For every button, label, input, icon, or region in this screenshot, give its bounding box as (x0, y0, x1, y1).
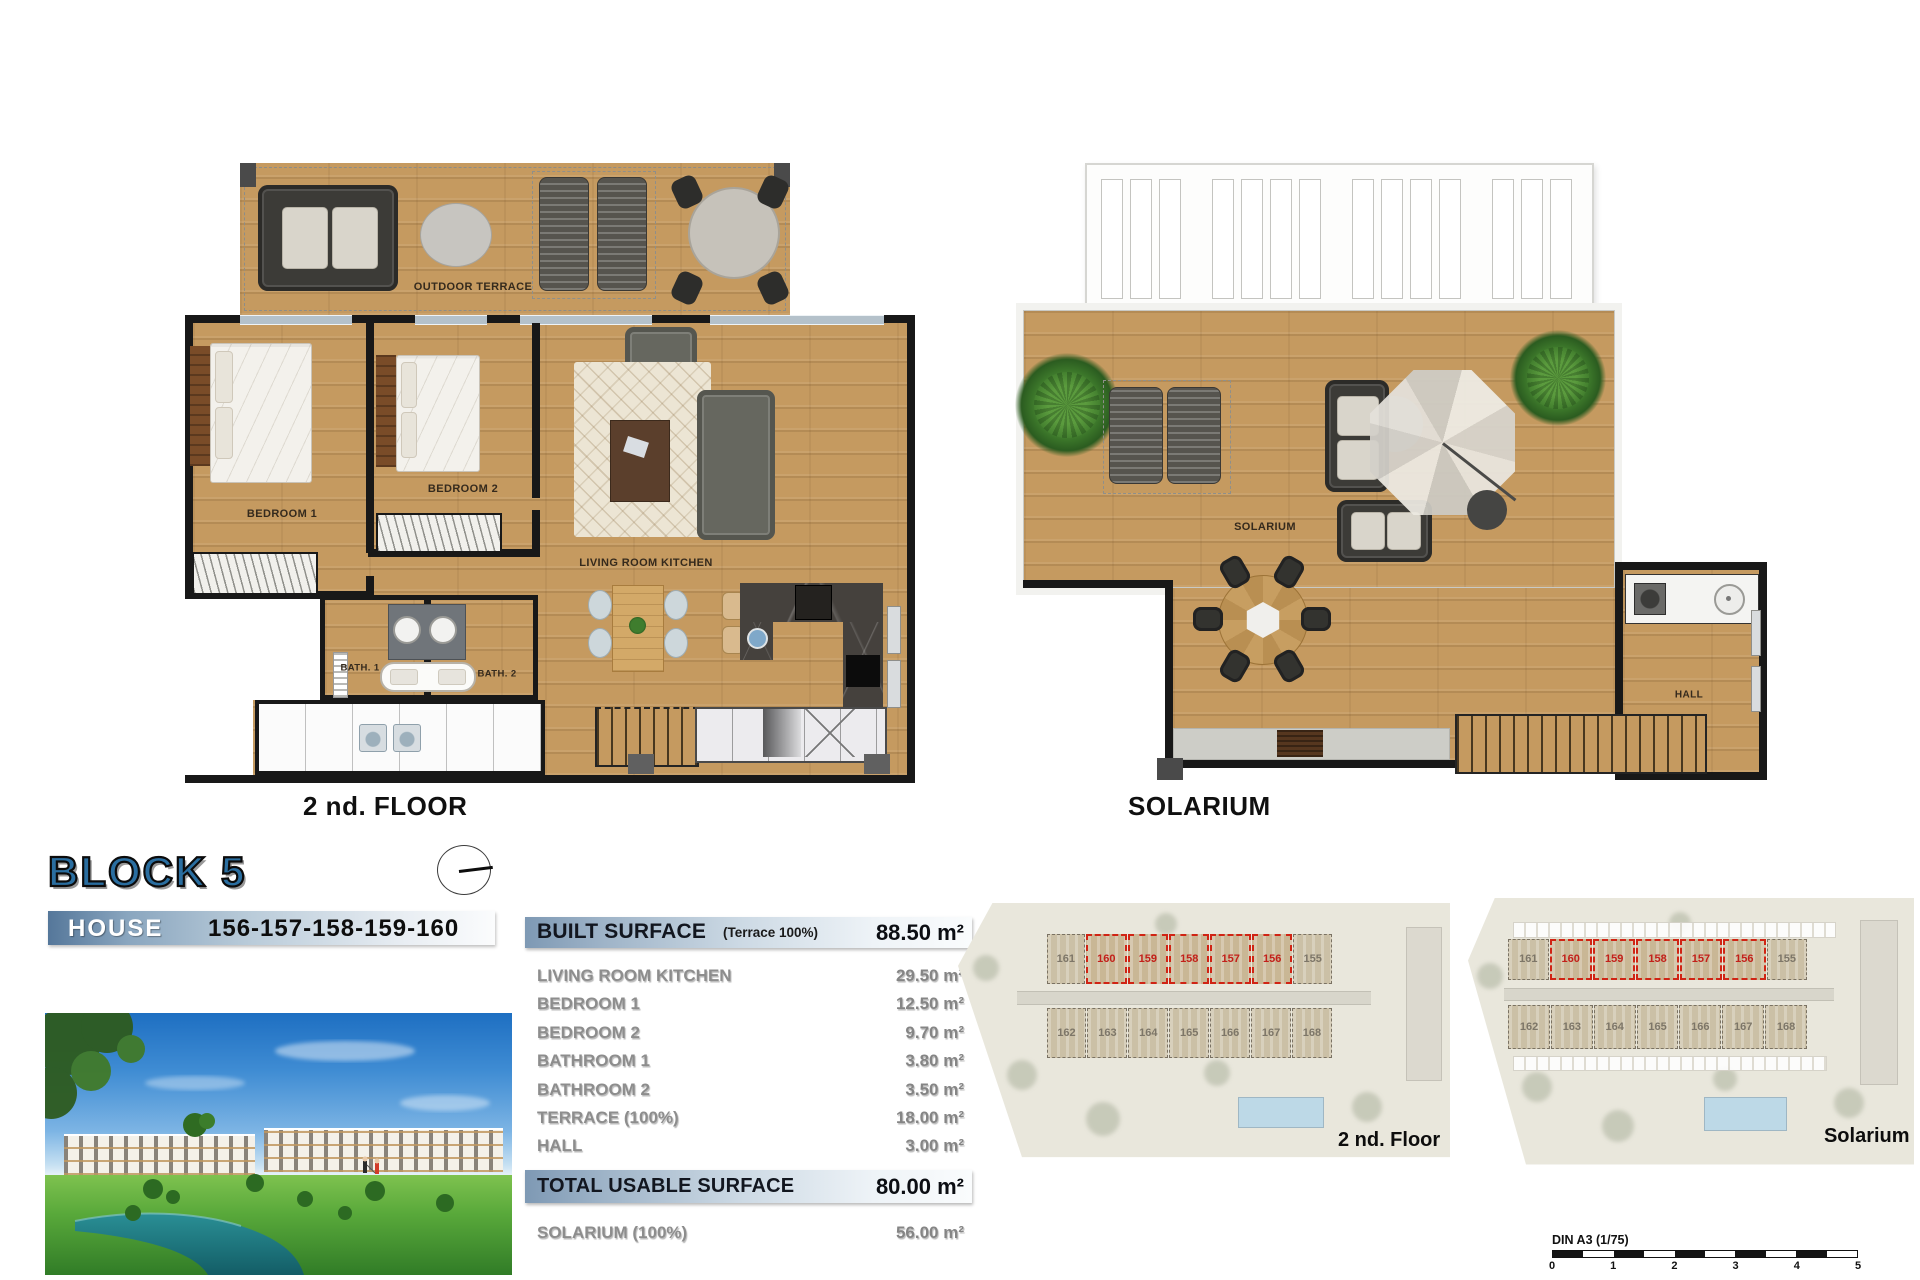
scale-bar-strip (1552, 1250, 1858, 1258)
dining-chair (588, 590, 612, 620)
siteplan-unit-158: 158 (1169, 934, 1209, 984)
siteplan-unit-156: 156 (1723, 939, 1765, 980)
siteplan-unit-163: 163 (1087, 1008, 1127, 1058)
pergola-slat (1521, 179, 1543, 299)
wall-post (864, 754, 890, 774)
surface-table: BUILT SURFACE (Terrace 100%) 88.50 m² LI… (525, 917, 972, 1247)
outdoor-terrace-area: OUTDOOR TERRACE (240, 163, 790, 315)
bathrooms-block: BATH. 1 BATH. 2 (320, 595, 538, 700)
siteplan-pool (1704, 1097, 1786, 1132)
radiator (333, 652, 348, 698)
terrace-chair (669, 269, 705, 307)
dining-chair (664, 628, 688, 658)
pergola-slat (1352, 179, 1374, 299)
siteplan-unit-166: 166 (1679, 1005, 1721, 1049)
terrace-lounger (540, 178, 588, 290)
solarium-surface-value: 56.00 m² (896, 1223, 964, 1243)
kitchen-sink (747, 628, 768, 649)
siteplan-unit-160: 160 (1550, 939, 1592, 980)
surface-row: BATHROOM 23.50 m² (525, 1076, 972, 1104)
bathtub (380, 662, 476, 692)
coffee-table (610, 420, 670, 502)
surface-rows: LIVING ROOM KITCHEN29.50 m²BEDROOM 112.5… (525, 962, 972, 1161)
living-sofa (697, 390, 775, 540)
window (887, 606, 901, 654)
window (887, 660, 901, 708)
solarium-surface-row: SOLARIUM (100%) 56.00 m² (525, 1219, 972, 1247)
wall (366, 323, 374, 553)
exterior-cutout (253, 599, 320, 700)
siteplan-unit-156: 156 (1252, 934, 1292, 984)
room-label-outdoor-terrace: OUTDOOR TERRACE (414, 281, 532, 293)
surface-row-label: LIVING ROOM KITCHEN (537, 966, 732, 986)
solarium-dining-chair (1193, 607, 1223, 631)
summer-kitchen (1625, 574, 1759, 624)
window (1751, 666, 1761, 712)
siteplan-unit-159: 159 (1593, 939, 1635, 980)
terrace-sofa (258, 185, 398, 291)
built-surface-value: 88.50 m² (876, 920, 964, 946)
room-label-hall: HALL (1675, 690, 1703, 701)
wall (1023, 580, 1173, 588)
plan-sheet-page: OUTDOOR TERRACE BEDROOM 1 BEDROOM 2 (0, 0, 1920, 1280)
surface-row: BATHROOM 13.80 m² (525, 1047, 972, 1075)
wall-post (1157, 758, 1183, 780)
surface-row-value: 3.50 m² (905, 1080, 964, 1100)
terrace-chair (755, 269, 791, 307)
window (710, 315, 884, 325)
siteplan-row-bottom: 162163164165166167168 (1508, 1005, 1807, 1049)
pergola-slat (1550, 179, 1572, 299)
solarium-plan-title: SOLARIUM (1128, 791, 1271, 822)
siteplan-unit-166: 166 (1210, 1008, 1250, 1058)
siteplan-unit-165: 165 (1637, 1005, 1679, 1049)
bed2-wardrobe (376, 513, 502, 553)
surface-row-label: BATHROOM 1 (537, 1051, 650, 1071)
dining-chair (664, 590, 688, 620)
siteplan-side-building (1406, 927, 1442, 1081)
siteplan-row-bottom: 162163164165166167168 (1047, 1008, 1332, 1058)
pergola-slat (1130, 179, 1152, 299)
total-surface-bar: TOTAL USABLE SURFACE 80.00 m² (525, 1170, 972, 1203)
scale-tick: 0 (1549, 1260, 1555, 1272)
solarium-plan: HALL SOLARIUM (1015, 158, 1765, 808)
bed2-headboard (376, 355, 396, 467)
north-indicator-icon (437, 845, 491, 895)
scale-bar-ticks: 012345 (1552, 1260, 1858, 1274)
wall-post (628, 754, 654, 774)
siteplan-unit-161: 161 (1047, 934, 1085, 984)
stairs (1455, 714, 1707, 774)
solarium-lounger (1110, 388, 1162, 483)
pergola-slat (1159, 179, 1181, 299)
window (1751, 610, 1761, 656)
siteplan-unit-158: 158 (1636, 939, 1678, 980)
surface-row: BEDROOM 112.50 m² (525, 990, 972, 1018)
siteplan-unit-155: 155 (1767, 939, 1807, 980)
washer-icon (359, 724, 387, 752)
scale-tick: 3 (1733, 1260, 1739, 1272)
siteplan-unit-167: 167 (1722, 1005, 1764, 1049)
surface-row: HALL3.00 m² (525, 1132, 972, 1160)
sink (393, 616, 421, 644)
pergola-slat (1241, 179, 1263, 299)
siteplan-row-top: 161160159158157156155 (1047, 934, 1332, 984)
siteplan-unit-165: 165 (1169, 1008, 1209, 1058)
golfers-icon (363, 1157, 380, 1175)
pergola-slat (1439, 179, 1461, 299)
siteplan-pergola-row (1513, 922, 1836, 938)
siteplan-unit-162: 162 (1047, 1008, 1087, 1058)
room-label-solarium: SOLARIUM (1234, 521, 1296, 533)
siteplan-second-floor: 161160159158157156155 162163164165166167… (958, 903, 1450, 1165)
terrace-lounger (598, 178, 646, 290)
bed1-headboard (190, 346, 210, 466)
siteplan-label: Solarium (1824, 1125, 1910, 1148)
siteplan-unit-163: 163 (1551, 1005, 1593, 1049)
room-label-bedroom1: BEDROOM 1 (247, 508, 317, 520)
surface-row-value: 9.70 m² (905, 1023, 964, 1043)
exterior-cutout (185, 599, 253, 775)
pergola-slat (1381, 179, 1403, 299)
scale-bar-label: DIN A3 (1/75) (1552, 1233, 1858, 1247)
solarium-dining-chairs (1218, 575, 1306, 663)
sink (429, 616, 457, 644)
siteplan-pool (1238, 1097, 1324, 1128)
siteplan-unit-155: 155 (1293, 934, 1331, 984)
appliance-icon (1634, 583, 1666, 615)
house-number-bar: HOUSE 156-157-158-159-160 (48, 911, 495, 945)
surface-row: TERRACE (100%)18.00 m² (525, 1104, 972, 1132)
siteplan-unit-164: 164 (1594, 1005, 1636, 1049)
surface-row-value: 12.50 m² (896, 994, 964, 1014)
table-plant (629, 617, 646, 634)
scale-bar: DIN A3 (1/75) 012345 (1552, 1233, 1858, 1274)
bed2 (396, 355, 480, 472)
pergola-slat (1299, 179, 1321, 299)
scale-tick: 2 (1671, 1260, 1677, 1272)
siteplan-unit-168: 168 (1765, 1005, 1807, 1049)
bed1-wardrobe (192, 552, 318, 595)
siteplan-pergola-row (1513, 1056, 1827, 1072)
built-surface-note: (Terrace 100%) (723, 925, 818, 940)
surface-row-label: BEDROOM 2 (537, 1023, 640, 1043)
built-surface-header: BUILT SURFACE (Terrace 100%) 88.50 m² (525, 917, 972, 948)
surface-row-label: BATHROOM 2 (537, 1080, 650, 1100)
scale-tick: 5 (1855, 1260, 1861, 1272)
scale-tick: 1 (1610, 1260, 1616, 1272)
surface-row: LIVING ROOM KITCHEN29.50 m² (525, 962, 972, 990)
laundry-room (255, 700, 545, 775)
siteplan-solarium: 161160159158157156155 162163164165166167… (1468, 898, 1914, 1170)
house-label: HOUSE (68, 915, 163, 943)
scale-tick: 4 (1794, 1260, 1800, 1272)
surface-row: BEDROOM 29.70 m² (525, 1019, 972, 1047)
pergola (1085, 163, 1594, 315)
built-surface-label: BUILT SURFACE (537, 920, 706, 944)
bed1 (210, 343, 312, 483)
second-floor-plan: OUTDOOR TERRACE BEDROOM 1 BEDROOM 2 (180, 158, 920, 808)
house-numbers: 156-157-158-159-160 (208, 915, 459, 943)
development-photo (45, 1013, 512, 1275)
floor-plan-title: 2 nd. FLOOR (303, 791, 467, 822)
pergola-slat (1492, 179, 1514, 299)
surface-row-label: BEDROOM 1 (537, 994, 640, 1014)
window (415, 315, 487, 325)
total-surface-label: TOTAL USABLE SURFACE (537, 1175, 794, 1198)
kitchen-appliance (795, 585, 832, 620)
siteplan-unit-167: 167 (1251, 1008, 1291, 1058)
siteplan-label: 2 nd. Floor (1338, 1129, 1440, 1152)
surface-row-value: 18.00 m² (896, 1108, 964, 1128)
umbrella-base (1467, 490, 1507, 530)
pergola-slat (1270, 179, 1292, 299)
dining-chair (588, 628, 612, 658)
photo-overlay (45, 1013, 512, 1275)
block-title: BLOCK 5 (48, 848, 246, 896)
plant (1510, 330, 1606, 426)
surface-row-label: HALL (537, 1136, 582, 1156)
siteplan-unit-159: 159 (1128, 934, 1168, 984)
siteplan-side-building (1860, 920, 1898, 1085)
window (240, 315, 352, 325)
room-label-bath2: BATH. 2 (477, 669, 516, 680)
siteplan-row-top: 161160159158157156155 (1508, 939, 1807, 980)
siteplan-road (1504, 988, 1834, 1001)
sink (1714, 584, 1745, 615)
siteplan-unit-162: 162 (1508, 1005, 1550, 1049)
surface-row-value: 3.80 m² (905, 1051, 964, 1071)
solarium-dining-chair (1301, 607, 1331, 631)
solarium-lounger (1168, 388, 1220, 483)
surface-row-label: TERRACE (100%) (537, 1108, 679, 1128)
siteplan-unit-157: 157 (1680, 939, 1722, 980)
siteplan-unit-157: 157 (1210, 934, 1250, 984)
surface-row-value: 29.50 m² (896, 966, 964, 986)
room-label-bedroom2: BEDROOM 2 (428, 483, 498, 495)
siteplan-unit-161: 161 (1508, 939, 1548, 980)
doormat (1277, 730, 1323, 757)
cooktop (846, 655, 880, 687)
terrace-oval-table (420, 203, 492, 267)
pergola-slat (1410, 179, 1432, 299)
solarium-surface-label: SOLARIUM (100%) (537, 1223, 687, 1243)
siteplan-unit-168: 168 (1292, 1008, 1332, 1058)
pergola-slat (1212, 179, 1234, 299)
siteplan-road (1017, 991, 1371, 1005)
room-label-living: LIVING ROOM KITCHEN (579, 557, 713, 569)
siteplan-unit-160: 160 (1086, 934, 1126, 984)
surface-row-value: 3.00 m² (905, 1136, 964, 1156)
terrace-post (240, 163, 256, 187)
washer-icon (393, 724, 421, 752)
wall (532, 323, 540, 498)
total-surface-value: 80.00 m² (876, 1174, 964, 1200)
pergola-slat (1101, 179, 1123, 299)
siteplan-unit-164: 164 (1128, 1008, 1168, 1058)
cabinet-row (695, 707, 887, 763)
room-label-bath1: BATH. 1 (340, 663, 379, 674)
